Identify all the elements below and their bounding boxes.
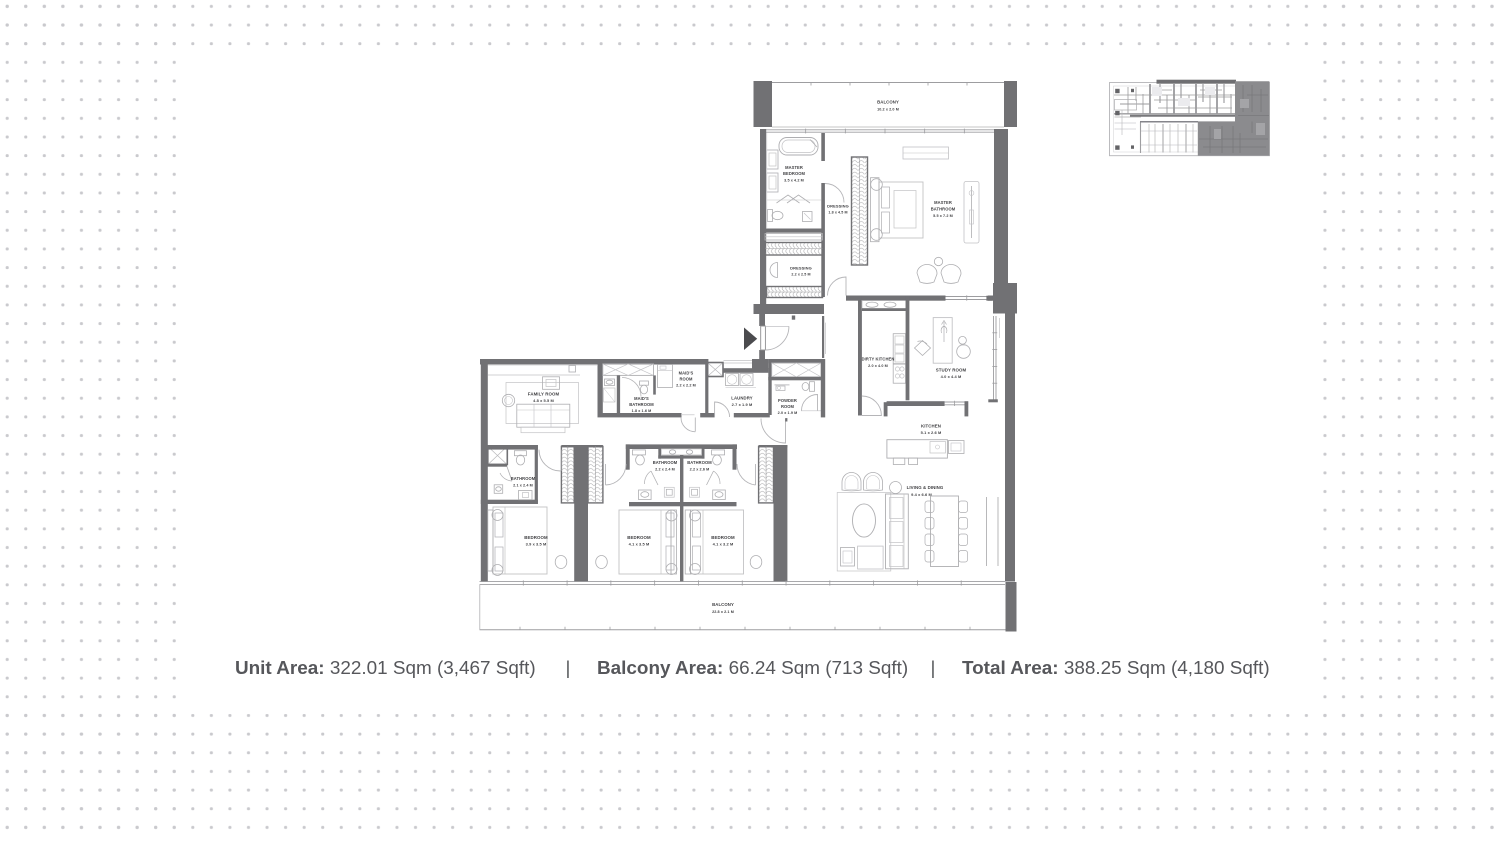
svg-text:DIRTY KITCHEN: DIRTY KITCHEN: [862, 357, 895, 362]
svg-text:BALCONY: BALCONY: [712, 602, 734, 607]
svg-text:BATHROOM: BATHROOM: [629, 402, 654, 407]
svg-text:2.2 x 2.5 M: 2.2 x 2.5 M: [791, 273, 810, 277]
svg-text:5.1 x 2.6 M: 5.1 x 2.6 M: [921, 430, 942, 435]
svg-text:3.9 x 3.5 M: 3.9 x 3.5 M: [526, 542, 547, 547]
svg-text:ROOM: ROOM: [781, 404, 795, 409]
svg-text:KITCHEN: KITCHEN: [921, 424, 941, 429]
svg-text:MAID'S: MAID'S: [679, 371, 694, 376]
svg-text:1.8 x 1.6 M: 1.8 x 1.6 M: [632, 409, 652, 413]
svg-text:BATHROOM: BATHROOM: [931, 207, 956, 212]
svg-text:Total Area: 388.25 Sqm (4,180: Total Area: 388.25 Sqm (4,180 Sqft): [962, 658, 1270, 679]
svg-text:2.2 x 2.4 M: 2.2 x 2.4 M: [655, 467, 675, 471]
svg-text:2.1 x 2.4 M: 2.1 x 2.4 M: [513, 484, 533, 488]
svg-text:ROOM: ROOM: [679, 377, 693, 382]
svg-text:STUDY ROOM: STUDY ROOM: [936, 368, 967, 373]
svg-text:Unit Area: 322.01 Sqm (3,467 S: Unit Area: 322.01 Sqm (3,467 Sqft): [235, 658, 536, 679]
svg-text:BEDROOM: BEDROOM: [627, 535, 651, 540]
svg-text:BATHROOM: BATHROOM: [511, 476, 536, 481]
svg-text:2.0 x 1.9 M: 2.0 x 1.9 M: [778, 411, 798, 415]
svg-text:9.4 x 6.6 M: 9.4 x 6.6 M: [911, 492, 932, 497]
svg-text:2.2 x 2.6 M: 2.2 x 2.6 M: [690, 467, 710, 471]
svg-text:2.0 x 4.0 M: 2.0 x 4.0 M: [868, 364, 888, 368]
svg-text:DRESSING: DRESSING: [790, 266, 812, 271]
svg-text:LIVING & DINING: LIVING & DINING: [907, 485, 944, 490]
svg-text:|: |: [931, 658, 936, 679]
svg-text:BEDROOM: BEDROOM: [711, 535, 735, 540]
svg-text:POWDER: POWDER: [778, 398, 797, 403]
svg-text:FAMILY ROOM: FAMILY ROOM: [528, 392, 560, 397]
svg-text:4.1 x 3.5 M: 4.1 x 3.5 M: [629, 542, 650, 547]
svg-text:MAID'S: MAID'S: [634, 396, 649, 401]
svg-text:BATHROOM: BATHROOM: [687, 460, 712, 465]
svg-text:4.8 x 5.5 M: 4.8 x 5.5 M: [533, 398, 554, 403]
svg-text:|: |: [566, 658, 571, 679]
svg-text:10.2 x 2.0 M: 10.2 x 2.0 M: [877, 108, 899, 112]
svg-text:4.1 x 3.2 M: 4.1 x 3.2 M: [713, 542, 734, 547]
svg-text:2.7 x 1.9 M: 2.7 x 1.9 M: [732, 402, 753, 407]
svg-text:BALCONY: BALCONY: [877, 100, 899, 105]
svg-text:22.8 x 2.1 M: 22.8 x 2.1 M: [712, 610, 734, 614]
svg-text:4.0 x 4.4 M: 4.0 x 4.4 M: [941, 374, 962, 379]
svg-text:LAUNDRY: LAUNDRY: [731, 396, 752, 401]
svg-text:Balcony Area: 66.24 Sqm (713 S: Balcony Area: 66.24 Sqm (713 Sqft): [597, 658, 908, 679]
svg-text:BATHROOM: BATHROOM: [653, 460, 678, 465]
svg-text:BEDROOM: BEDROOM: [524, 535, 548, 540]
svg-text:2.2 x 2.2 M: 2.2 x 2.2 M: [676, 384, 696, 388]
svg-text:DRESSING: DRESSING: [827, 204, 849, 209]
svg-text:MASTER: MASTER: [934, 200, 952, 205]
svg-text:5.5 x 7.2 M: 5.5 x 7.2 M: [933, 214, 953, 218]
svg-text:3.5 x 4.2 M: 3.5 x 4.2 M: [784, 179, 804, 183]
svg-text:BEDROOM: BEDROOM: [783, 171, 805, 176]
svg-text:1.8 x 4.5 M: 1.8 x 4.5 M: [828, 211, 847, 215]
svg-text:MASTER: MASTER: [785, 165, 803, 170]
